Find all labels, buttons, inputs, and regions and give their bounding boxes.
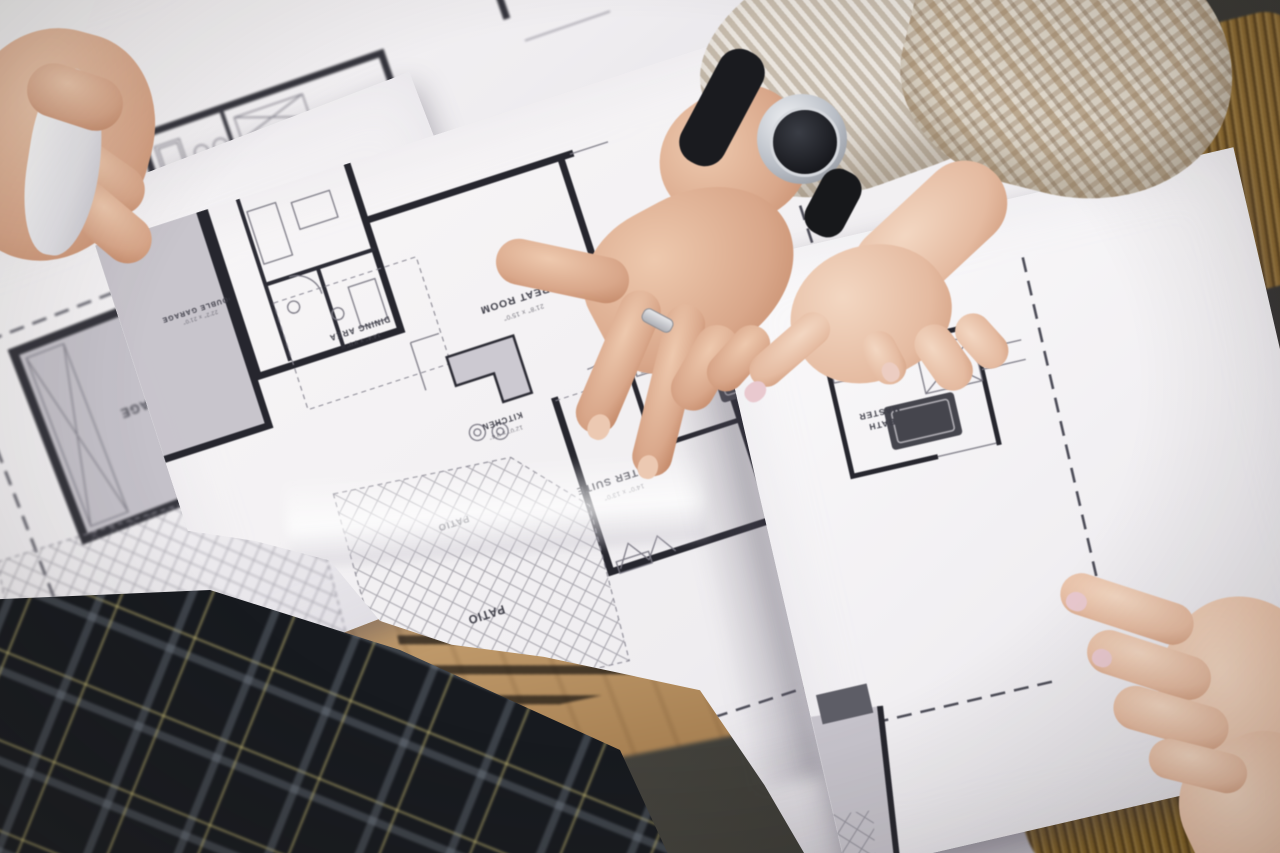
watch-face-icon bbox=[770, 107, 840, 177]
kitchen-island bbox=[447, 336, 532, 415]
photo-scene: DOUBLE GARAGE 22'2" x 21'0" 365 sq. ft. … bbox=[0, 0, 1280, 853]
kitchen: KITCHEN 12'0" x 9'4" bbox=[410, 312, 542, 457]
